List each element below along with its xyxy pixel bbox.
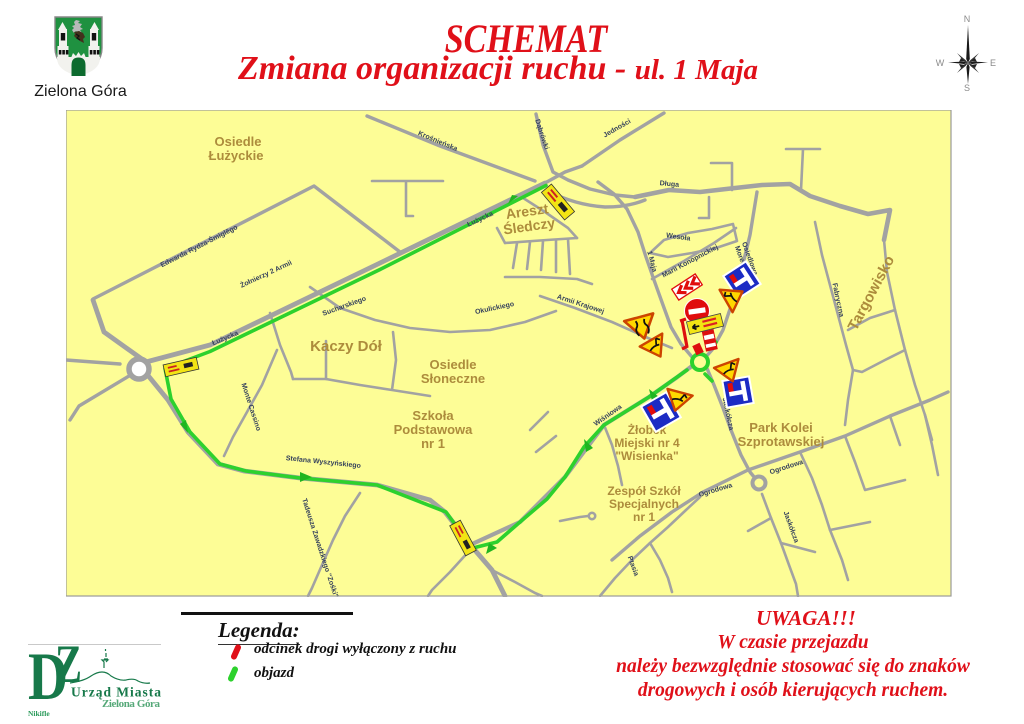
svg-text:Podstawowa: Podstawowa	[394, 422, 474, 437]
svg-text:Osiedle: Osiedle	[215, 134, 262, 149]
svg-text:Szkoła: Szkoła	[412, 408, 454, 423]
svg-text:N: N	[964, 14, 971, 24]
svg-text:Zielona Góra: Zielona Góra	[102, 698, 161, 710]
svg-text:S: S	[964, 83, 970, 93]
svg-text:E: E	[990, 58, 996, 68]
svg-text:Łużyckie: Łużyckie	[209, 148, 264, 163]
svg-text:Kaczy Dół: Kaczy Dół	[310, 338, 383, 355]
svg-text:Nikifle: Nikifle	[28, 709, 50, 718]
svg-text:nr 1: nr 1	[421, 436, 445, 451]
svg-text:Specjalnych: Specjalnych	[609, 497, 679, 511]
svg-text:Miejski nr 4: Miejski nr 4	[614, 436, 680, 450]
svg-text:Osiedle: Osiedle	[430, 357, 477, 372]
svg-text:Park Kolei: Park Kolei	[749, 420, 813, 435]
svg-text:W: W	[936, 58, 945, 68]
svg-text:nr 1: nr 1	[633, 510, 655, 524]
svg-text:Słoneczne: Słoneczne	[421, 371, 485, 386]
svg-text:Szprotawskiej: Szprotawskiej	[738, 434, 825, 449]
svg-text:Zespół Szkół: Zespół Szkół	[607, 484, 681, 498]
svg-text:"Wisienka": "Wisienka"	[615, 449, 678, 463]
